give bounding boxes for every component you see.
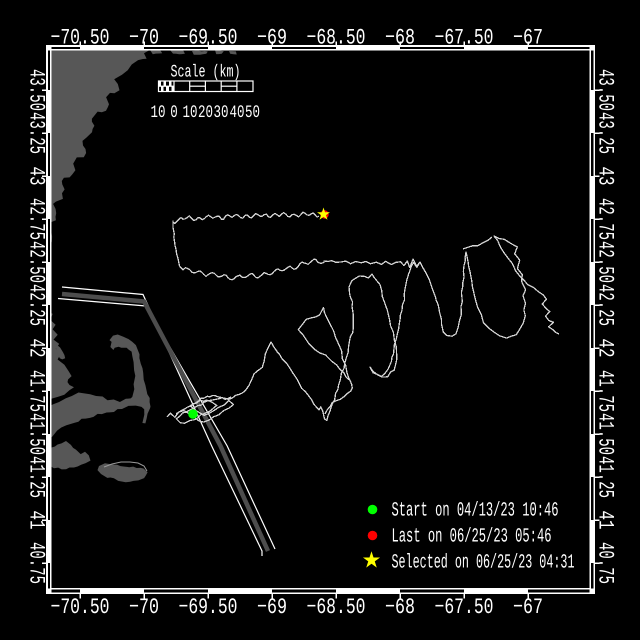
svg-text:43: 43 (24, 167, 49, 186)
svg-text:10: 10 (183, 103, 198, 123)
svg-text:−70.50: −70.50 (51, 595, 110, 620)
svg-text:41.75: 41.75 (592, 370, 617, 412)
svg-text:10: 10 (151, 103, 166, 123)
svg-text:41.25: 41.25 (592, 456, 617, 498)
svg-text:−67: −67 (513, 595, 543, 620)
svg-text:−68: −68 (385, 26, 415, 51)
svg-text:−70: −70 (129, 26, 159, 51)
svg-text:43.50: 43.50 (592, 69, 617, 111)
svg-text:−68.50: −68.50 (307, 595, 366, 620)
svg-text:41.50: 41.50 (592, 413, 617, 455)
svg-text:Scale (km): Scale (km) (171, 63, 241, 83)
svg-text:43.25: 43.25 (24, 112, 49, 154)
svg-text:43.25: 43.25 (592, 112, 617, 154)
svg-text:42: 42 (592, 339, 617, 358)
svg-text:20: 20 (198, 103, 213, 123)
svg-text:−69.50: −69.50 (179, 595, 238, 620)
svg-text:43: 43 (592, 167, 617, 186)
svg-text:40.75: 40.75 (24, 542, 49, 584)
svg-text:42.50: 42.50 (24, 241, 49, 283)
svg-text:30: 30 (214, 103, 229, 123)
svg-text:42.50: 42.50 (592, 241, 617, 283)
svg-text:41.25: 41.25 (24, 456, 49, 498)
svg-text:41: 41 (592, 511, 617, 530)
svg-text:0: 0 (170, 103, 178, 123)
svg-text:−67.50: −67.50 (435, 595, 494, 620)
svg-text:41.75: 41.75 (24, 370, 49, 412)
svg-text:42.25: 42.25 (24, 284, 49, 326)
svg-text:−69: −69 (257, 26, 287, 51)
svg-text:40.75: 40.75 (592, 542, 617, 584)
svg-text:−67.50: −67.50 (435, 26, 494, 51)
svg-text:42.25: 42.25 (592, 284, 617, 326)
svg-text:42: 42 (24, 339, 49, 358)
svg-text:−68: −68 (385, 595, 415, 620)
svg-text:−70: −70 (129, 595, 159, 620)
svg-text:50: 50 (245, 103, 260, 123)
svg-text:41.50: 41.50 (24, 413, 49, 455)
svg-text:41: 41 (24, 511, 49, 530)
svg-text:Start on 04/13/23 10:46: Start on 04/13/23 10:46 (392, 500, 559, 523)
svg-text:−69.50: −69.50 (179, 26, 238, 51)
svg-text:Selected on 06/25/23 04:31: Selected on 06/25/23 04:31 (392, 552, 575, 575)
svg-text:−69: −69 (257, 595, 287, 620)
svg-text:−68.50: −68.50 (307, 26, 366, 51)
svg-text:42.75: 42.75 (24, 198, 49, 240)
svg-text:−67: −67 (513, 26, 543, 51)
svg-text:43.50: 43.50 (24, 69, 49, 111)
svg-text:40: 40 (230, 103, 245, 123)
svg-text:−70.50: −70.50 (51, 26, 110, 51)
svg-text:Last on 06/25/23 05:46: Last on 06/25/23 05:46 (392, 526, 552, 549)
svg-text:42.75: 42.75 (592, 198, 617, 240)
